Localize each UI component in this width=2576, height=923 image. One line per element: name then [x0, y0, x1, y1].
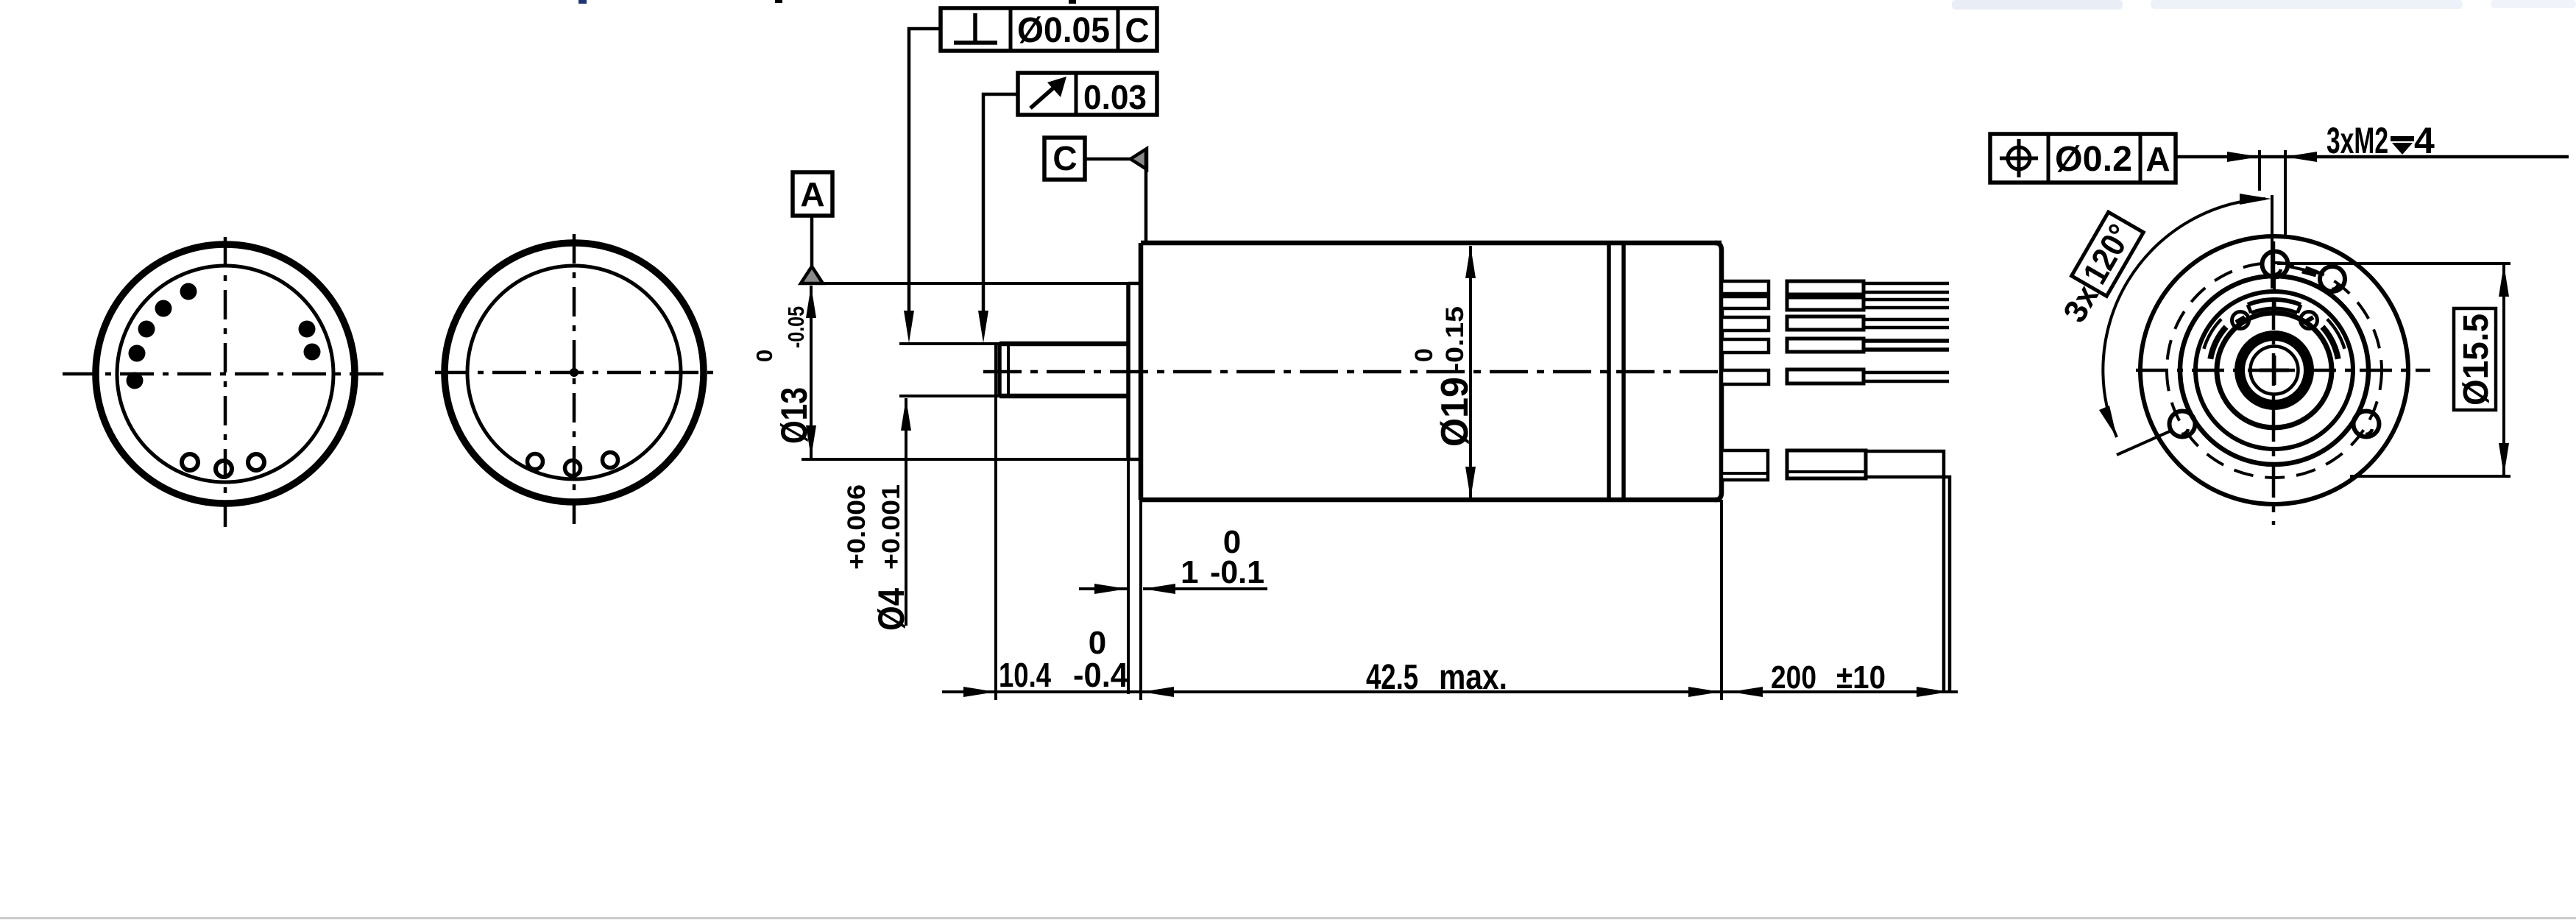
svg-text:0: 0 — [751, 350, 777, 362]
svg-text:A: A — [2145, 140, 2170, 178]
svg-text:1: 1 — [1181, 554, 1198, 590]
svg-text:4: 4 — [2414, 120, 2435, 161]
svg-text:0: 0 — [1410, 348, 1438, 362]
svg-text:Ø4: Ø4 — [871, 588, 912, 631]
svg-text:Ø15.5: Ø15.5 — [2457, 314, 2496, 406]
svg-text:+0.001: +0.001 — [877, 484, 905, 570]
svg-text:0: 0 — [1223, 524, 1241, 560]
svg-text:A: A — [800, 175, 824, 213]
svg-text:Ø0.05: Ø0.05 — [1017, 11, 1110, 50]
svg-text:C: C — [1052, 139, 1077, 177]
svg-text:-0.05: -0.05 — [783, 306, 809, 348]
svg-text:+0.006: +0.006 — [843, 484, 871, 570]
svg-text:max.: max. — [1439, 658, 1507, 697]
svg-text:200: 200 — [1771, 659, 1816, 696]
svg-text:0.03: 0.03 — [1083, 78, 1147, 116]
svg-text:42.5: 42.5 — [1366, 658, 1418, 697]
svg-text:Ø13: Ø13 — [774, 387, 815, 444]
svg-text:±10: ±10 — [1836, 659, 1886, 696]
svg-text:Ø19: Ø19 — [1434, 377, 1476, 447]
svg-text:10.4: 10.4 — [999, 656, 1051, 694]
svg-text:3xM2: 3xM2 — [2326, 120, 2388, 161]
svg-text:-0.15: -0.15 — [1441, 306, 1469, 372]
svg-text:Ø0.2: Ø0.2 — [2055, 140, 2132, 179]
svg-text:-0.4: -0.4 — [1073, 656, 1128, 694]
svg-text:C: C — [1125, 11, 1149, 49]
svg-text:0: 0 — [1089, 625, 1106, 661]
